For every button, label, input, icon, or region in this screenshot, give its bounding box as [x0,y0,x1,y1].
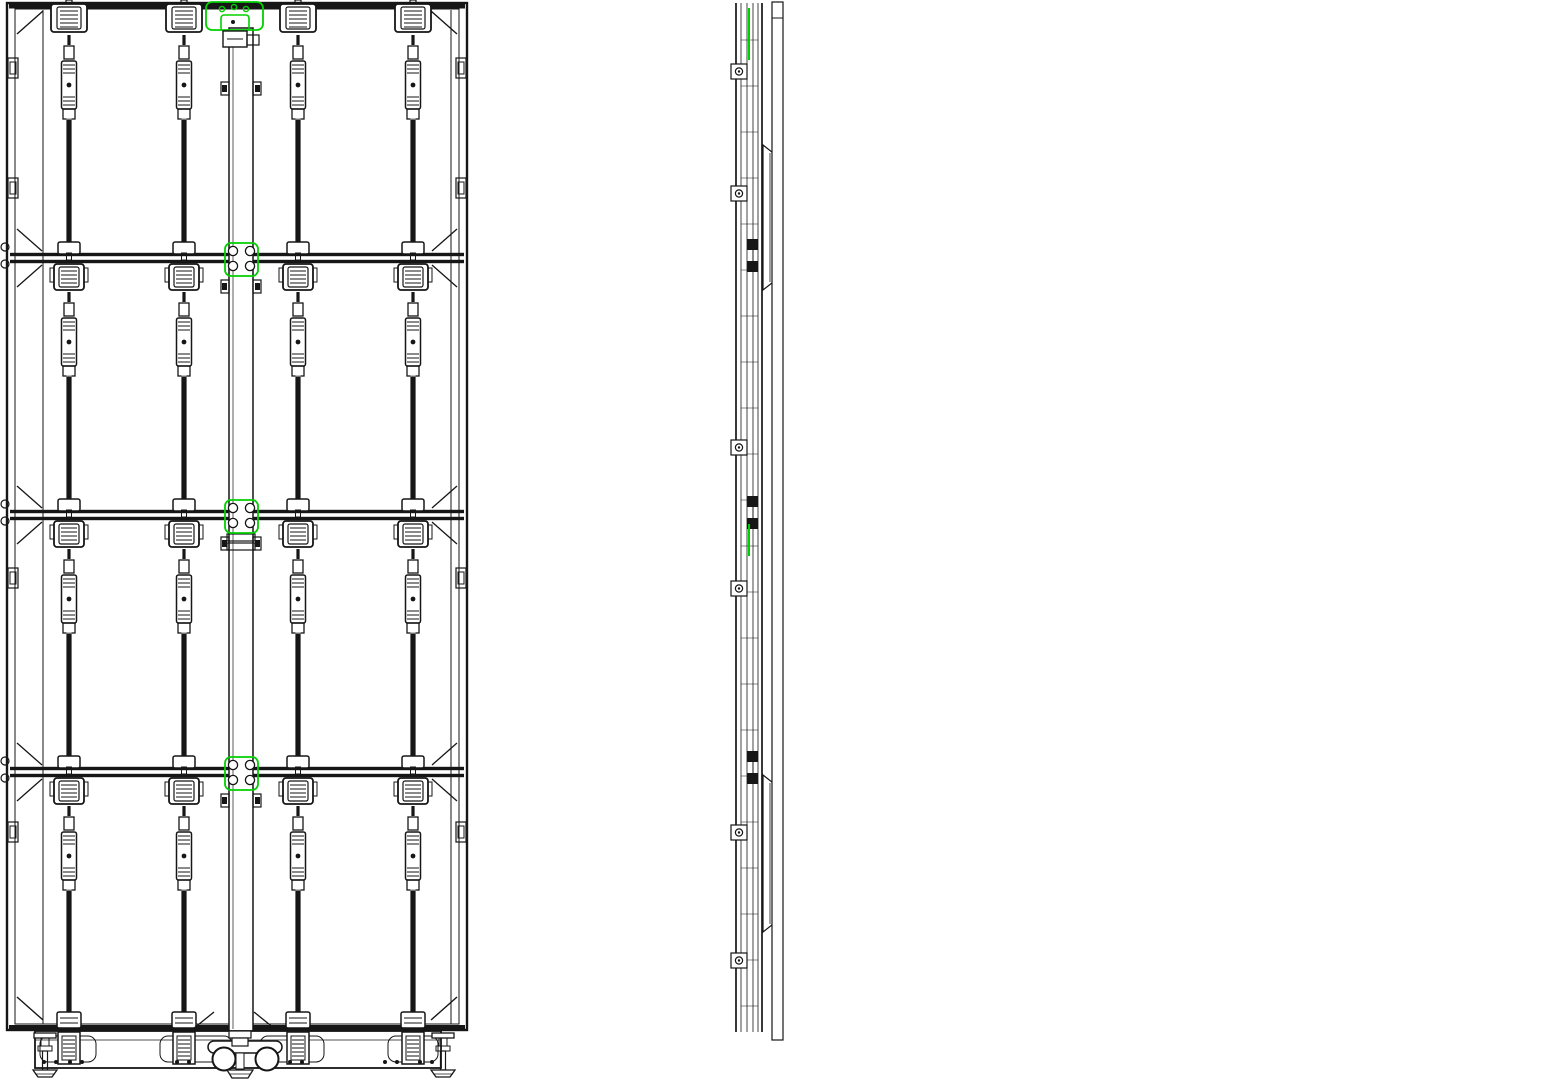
side-view-drawing [731,2,783,1040]
front-view-drawing [1,0,467,1078]
cad-drawing-page [0,0,1564,1080]
cad-drawing-canvas [0,0,1564,1080]
